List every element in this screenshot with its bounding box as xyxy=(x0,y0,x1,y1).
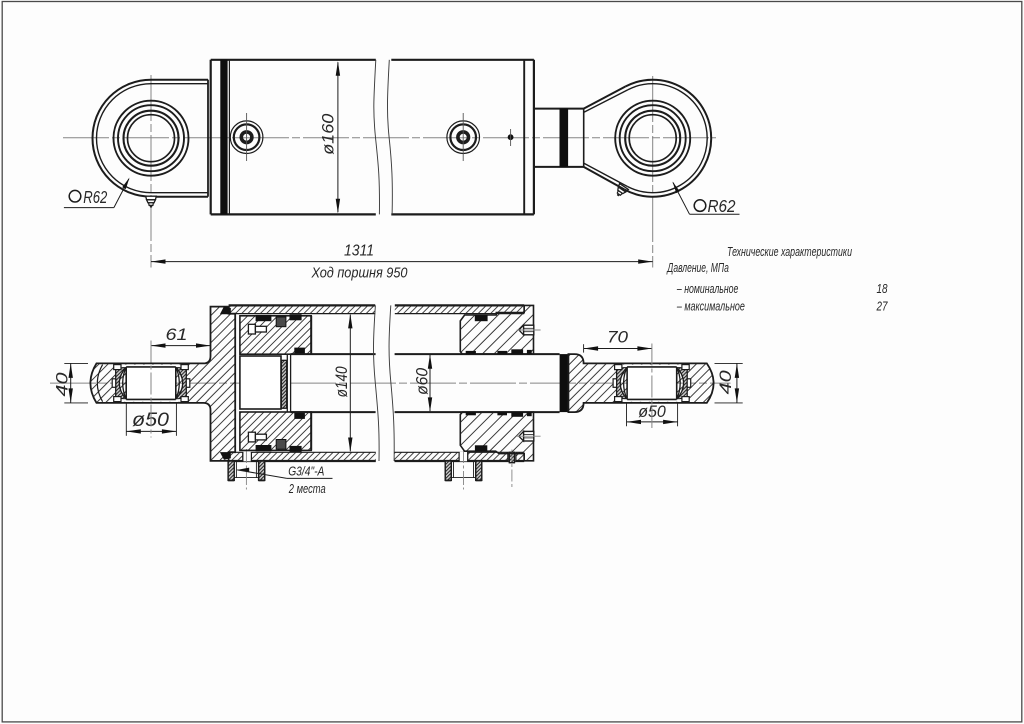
svg-text:2 места: 2 места xyxy=(288,481,326,496)
svg-text:ø60: ø60 xyxy=(412,367,431,394)
svg-text:Давление, МПа: Давление, МПа xyxy=(666,260,729,275)
svg-text:ø160: ø160 xyxy=(319,113,338,155)
svg-text:27: 27 xyxy=(876,299,888,314)
svg-text:1311: 1311 xyxy=(344,243,374,260)
svg-text:– максимальное: – максимальное xyxy=(676,299,745,314)
svg-text:61: 61 xyxy=(166,326,188,344)
svg-text:– номинальное: – номинальное xyxy=(676,281,738,296)
svg-text:Технические характеристики: Технические характеристики xyxy=(727,244,852,259)
svg-text:ø140: ø140 xyxy=(332,366,351,397)
svg-text:Ход поршня 950: Ход поршня 950 xyxy=(311,265,408,282)
svg-text:18: 18 xyxy=(877,281,889,296)
svg-text:40: 40 xyxy=(53,371,71,396)
svg-text:G3/4"-A: G3/4"-A xyxy=(288,464,324,479)
svg-text:40: 40 xyxy=(717,369,735,394)
svg-text:R62: R62 xyxy=(708,196,736,216)
svg-text:70: 70 xyxy=(607,329,629,347)
svg-text:R62: R62 xyxy=(83,187,107,207)
